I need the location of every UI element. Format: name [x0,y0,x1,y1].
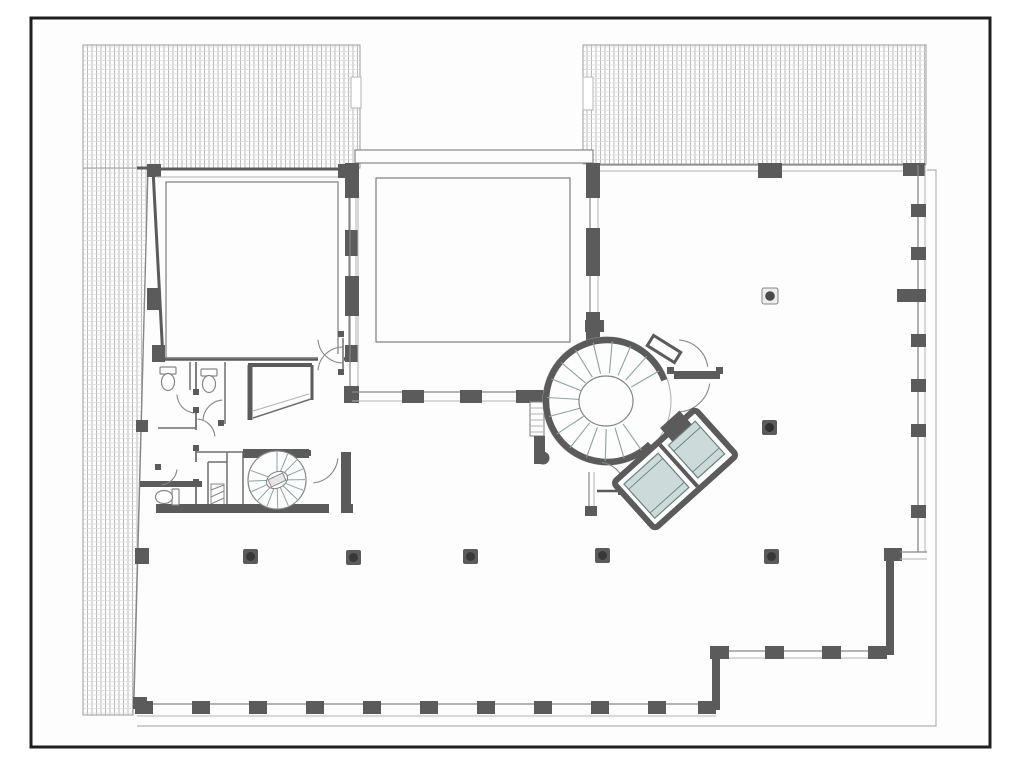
wall-step-vertical [886,552,894,655]
toilet [160,367,176,391]
ladder [530,402,544,436]
wall-segment [903,163,925,176]
wall-segment [345,345,358,362]
wall-segment [586,163,600,198]
floor-plan-page [0,0,1024,768]
wall-segment [586,228,600,276]
hatch-window-notch-right [583,77,593,110]
roof-hatch-top-right [583,45,926,164]
door-jamb [193,479,199,485]
column [762,420,777,435]
wall-segment [147,288,160,310]
door-jamb [716,367,723,374]
door-jamb [193,407,199,413]
wall-segment [344,386,359,403]
partition-wall [140,481,202,487]
stair2-right-wall [341,452,351,513]
wall-segment [585,506,597,516]
column [243,549,258,564]
wall-segment [135,548,149,564]
door-jamb [155,464,161,470]
wall-segment [585,320,604,332]
wall-segment [345,163,359,198]
floor-plan-root [31,18,990,747]
column-capped [762,288,778,304]
wall-segment-wide [897,289,926,302]
floor-plan-svg [0,0,1024,768]
door-jamb [305,450,311,456]
door-jamb [338,331,344,337]
door-jamb [338,369,344,375]
hatch-window-notch-left [351,77,361,108]
toilet [156,489,180,505]
wall-segment [345,276,359,316]
stair2-bottom-wall [156,504,353,513]
roomB-top-band [355,150,593,163]
wall-segment [152,345,165,362]
door-jamb [667,367,674,374]
wall-segment [516,390,545,403]
wall-segment [758,163,782,178]
toilet [201,369,217,393]
stair2-bottom-notch [329,504,341,513]
column [764,549,779,564]
spiral-stair-void [579,376,633,426]
column [463,549,478,564]
door-jamb [193,445,199,451]
column [595,548,610,563]
stair-newel-column [537,452,550,465]
door-jamb [218,420,224,426]
column [346,550,361,565]
roof-hatch-top-left [83,45,360,168]
lobby-wall [674,371,720,379]
door-jamb [193,389,199,395]
wall-segment [136,420,148,432]
wall-segment [133,697,147,709]
